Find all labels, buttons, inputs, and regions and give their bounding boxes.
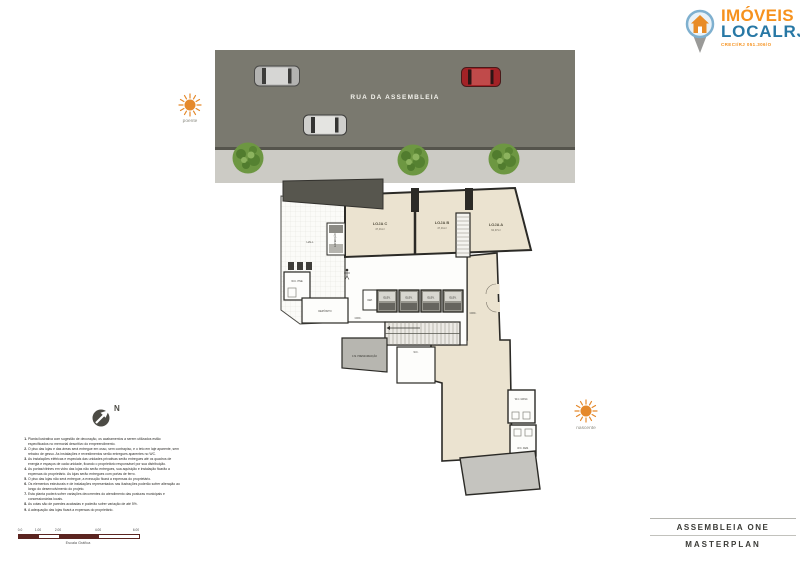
car-red-icon [460, 65, 502, 89]
scale-tick: 2.00 [55, 528, 61, 532]
cm-pressurizacao-label: C.M. PRESSURIZAÇÃO [352, 355, 377, 358]
floor-plan: LOJA C 47,31m² LOJA B 47,31m² LOJA A 62,… [270, 176, 546, 496]
circ-left-label: CIRC. [355, 317, 362, 320]
elevator: ELEV. [443, 290, 463, 312]
scale-segment [19, 535, 39, 538]
scale-tick: 0.0 [18, 528, 22, 532]
loja-b-area: 47,31m² [437, 226, 447, 230]
wall-pillar [411, 188, 419, 212]
expedicao-room: EXPEDIÇÃO [327, 223, 345, 255]
stair-shaft [456, 213, 470, 257]
svg-text:ELEV.: ELEV. [449, 296, 456, 300]
wc-pne-room: W.C. PNE [284, 272, 310, 300]
disclaimer-notes: Planta ilustrativa com sugestão de decor… [20, 437, 180, 513]
scale-tick: 6.00 [133, 528, 139, 532]
note-item: A adequação das lojas ficará a expensas … [28, 508, 180, 513]
brand-line2: LOCALRJ [721, 24, 800, 40]
wall-pillar [465, 188, 473, 210]
north-arrow-icon: N [88, 398, 126, 430]
location-pin-house-icon [683, 8, 717, 56]
loja-a-label: LOJA A [489, 222, 503, 227]
service-gray-block [460, 451, 540, 495]
dep-room: DEP. [363, 290, 377, 310]
expedicao-label: EXPEDIÇÃO [334, 233, 337, 247]
note-item: As instalações elétricas e especiais das… [28, 457, 180, 467]
wc-masc-label: W.C. MASC. [515, 398, 529, 401]
east-label: nascente [560, 426, 612, 431]
note-item: O piso das lojas e das áreas será entreg… [28, 447, 180, 457]
note-item: O piso das lojas não será entregue, a ex… [28, 477, 180, 482]
sheet-title: MASTERPLAN [650, 536, 796, 553]
scale-tick: 4.00 [95, 528, 101, 532]
scale-segment [59, 535, 99, 538]
brand-logo: IMÓVEIS LOCALRJ CRECI/RJ 051.306/O [683, 8, 800, 56]
elevator: ELEV. [377, 290, 397, 312]
street-name-label: RUA DA ASSEMBLEIA [215, 94, 575, 101]
dep-label: DEP. [367, 300, 372, 302]
note-item: As cotas são de paredes acabadas e poder… [28, 502, 180, 507]
wc-masc-room: W.C. MASC. [508, 390, 535, 423]
note-item: Os elementos estruturais e de instalaçõe… [28, 482, 180, 492]
car-white-icon [302, 112, 348, 138]
main-stairs [385, 322, 460, 345]
tree-icon [486, 141, 522, 177]
title-block: ASSEMBLEIA ONE MASTERPLAN [650, 518, 796, 553]
note-item: Esta planta poderá sofrer variações deco… [28, 492, 180, 502]
svg-text:ELEV.: ELEV. [383, 296, 390, 300]
brand-text: IMÓVEIS LOCALRJ CRECI/RJ 051.306/O [721, 8, 800, 48]
bike-rack-icons [288, 262, 312, 270]
wc-fem-label: W.C. FEM. [517, 447, 529, 450]
loja-b-label: LOJA B [435, 220, 450, 225]
masterplan-page: RUA DA ASSEMBLEIA [0, 0, 800, 561]
sun-icon [172, 87, 208, 123]
scale-segment [99, 535, 139, 538]
deposito-room: DEPÓSITO [302, 298, 348, 323]
note-item: Planta ilustrativa com sugestão de decor… [28, 437, 180, 447]
scale-label: Escala Gráfica [18, 541, 138, 545]
circ-right-label: CIRC. [470, 312, 477, 315]
elevator: ELEV. [421, 290, 441, 312]
wc-pne-label: W.C. PNE [291, 280, 303, 283]
wc-small-label: W.C. [414, 352, 419, 354]
loja-a-area: 62,97m² [491, 228, 501, 232]
elevator: ELEV. [399, 290, 419, 312]
svg-text:ELEV.: ELEV. [405, 296, 412, 300]
scale-tick: 1.00 [35, 528, 41, 532]
north-label: N [114, 404, 120, 413]
scale-segment [39, 535, 59, 538]
wc-small-room: W.C. [397, 347, 435, 383]
scale-bar [18, 534, 140, 539]
cm-pressurizacao-room: C.M. PRESSURIZAÇÃO [342, 338, 387, 372]
brand-creci: CRECI/RJ 051.306/O [721, 43, 800, 47]
tree-icon [230, 140, 266, 176]
loja-c-area: 47,31m² [375, 227, 385, 231]
loja-c-label: LOJA C [373, 221, 388, 226]
graphic-scale: 0.0 1.00 2.00 4.00 6.00 Escala Gráfica [18, 528, 142, 552]
car-silver-icon [253, 63, 301, 89]
sun-icon [568, 393, 604, 429]
note-item: As portas/vitrines em vidro das lojas nã… [28, 467, 180, 477]
svg-text:ELEV.: ELEV. [427, 296, 434, 300]
tree-icon [395, 142, 431, 178]
west-label: poente [168, 119, 212, 124]
project-title: ASSEMBLEIA ONE [650, 519, 796, 536]
notes-list: Planta ilustrativa com sugestão de decor… [20, 437, 180, 512]
hall-label: HALL [307, 240, 314, 244]
